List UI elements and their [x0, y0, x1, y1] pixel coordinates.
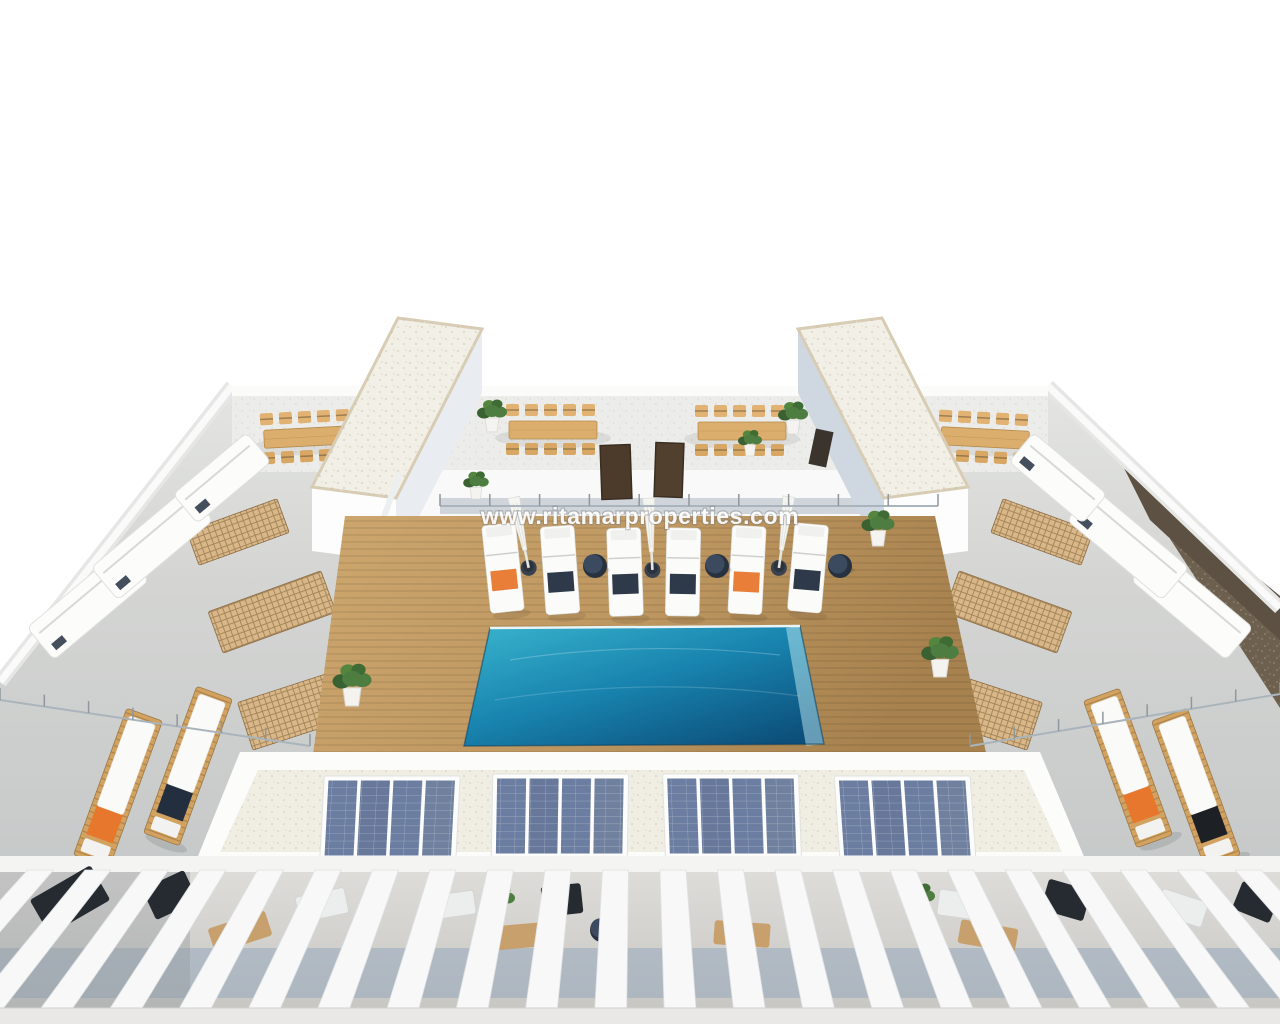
solar-array	[663, 774, 802, 863]
dining-set	[495, 404, 611, 455]
solar-array	[320, 776, 461, 865]
rooftop-render-canvas: www.ritamarproperties.com	[0, 0, 1280, 1024]
property-render: www.ritamarproperties.com	[0, 0, 1280, 1024]
watermark: www.ritamarproperties.com	[480, 503, 799, 529]
swimming-pool	[464, 626, 824, 746]
solar-array	[834, 776, 976, 865]
pavement-strip	[0, 1008, 1280, 1024]
solar-array	[491, 774, 629, 863]
